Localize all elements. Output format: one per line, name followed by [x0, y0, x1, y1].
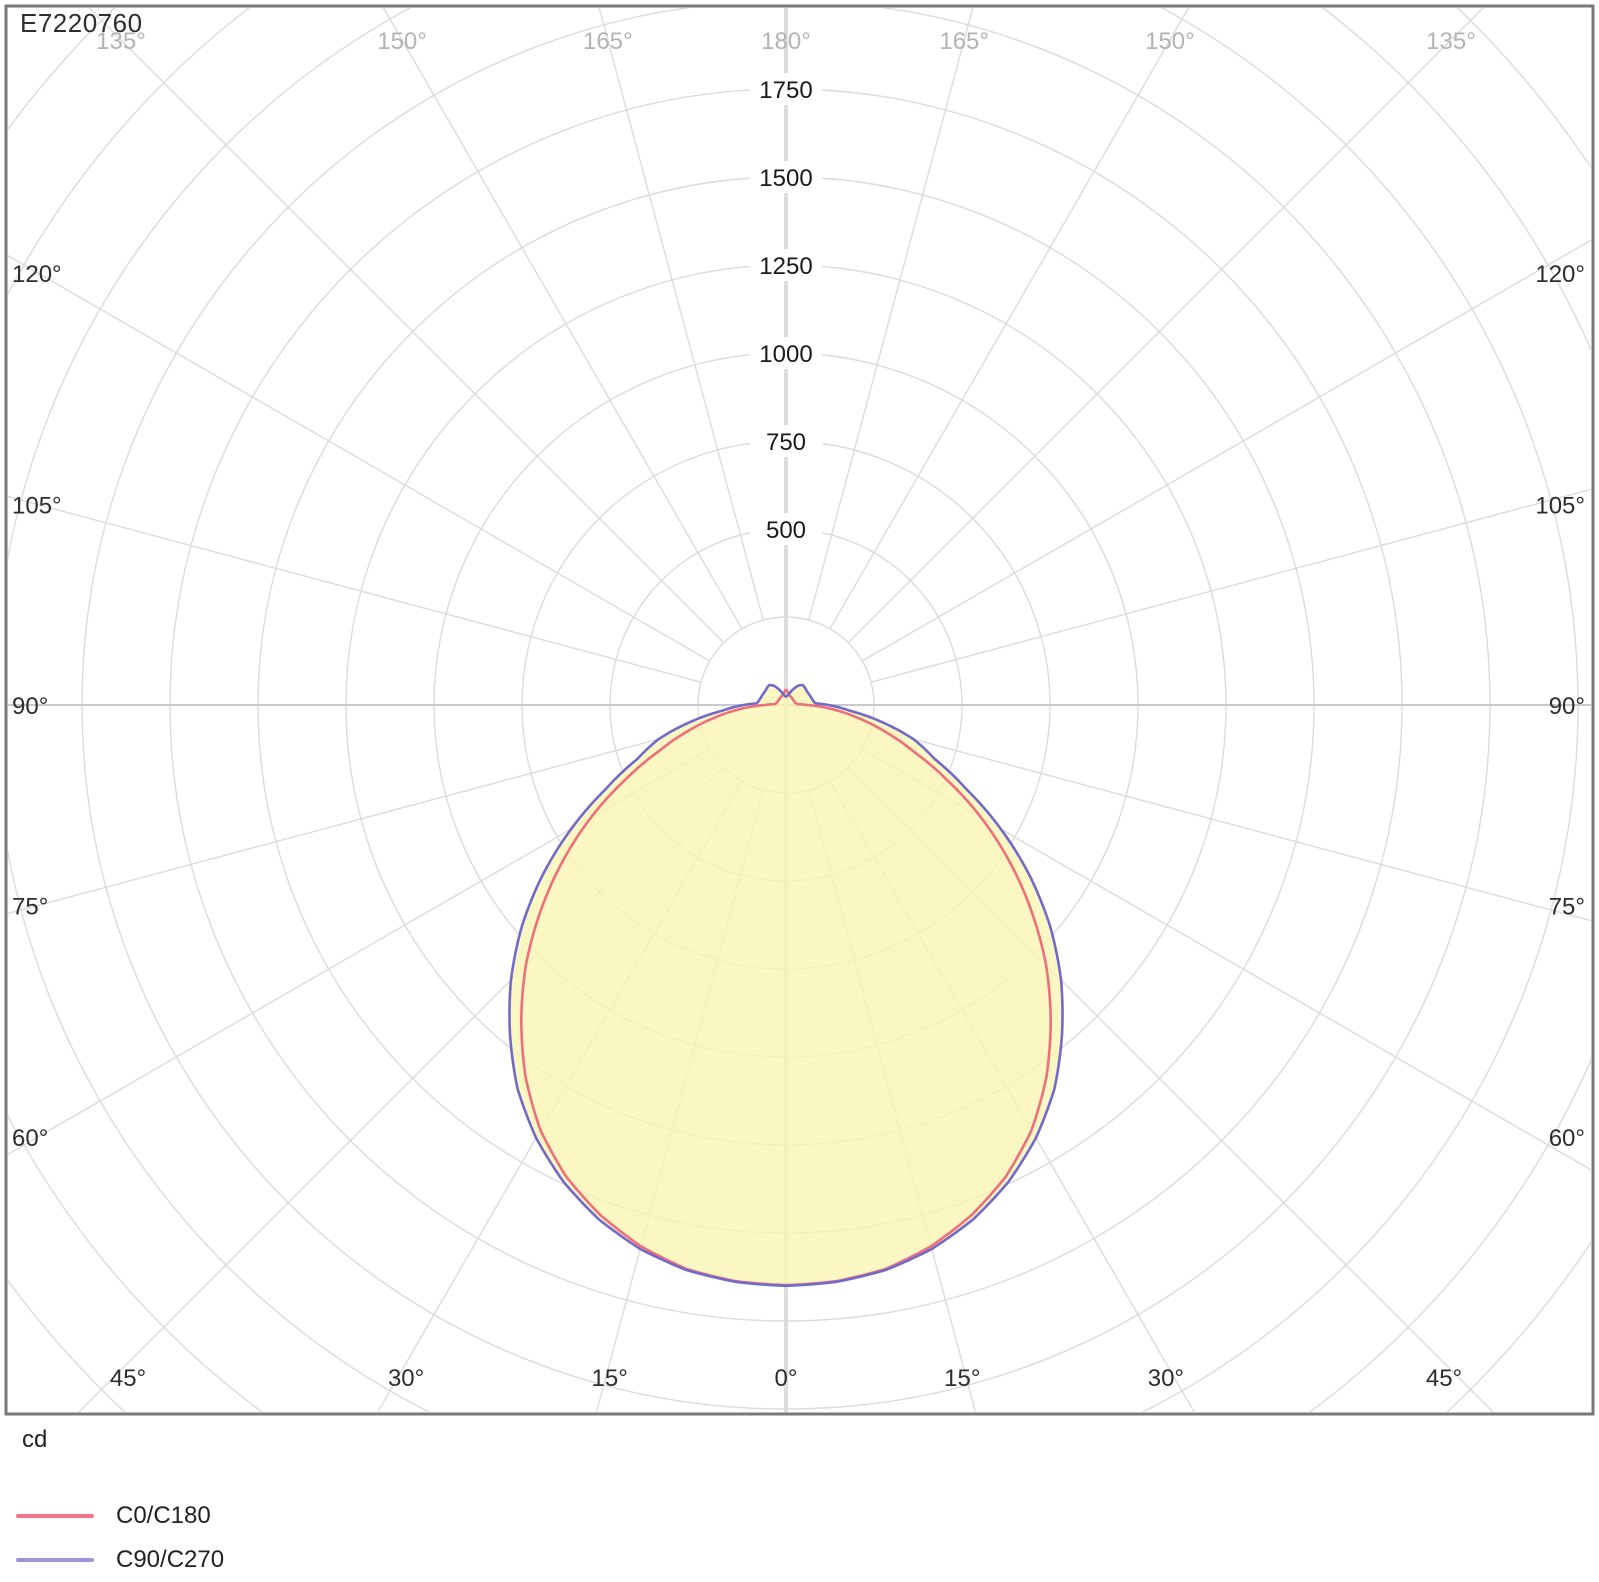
angle-tick-label: 105° [1535, 493, 1585, 520]
angle-tick-label: 0° [775, 1365, 798, 1392]
angle-tick-label: 90° [1549, 693, 1585, 720]
angle-tick-label: 120° [1535, 261, 1585, 288]
grid-spoke [501, 0, 763, 620]
angle-tick-label: 135° [1426, 28, 1476, 55]
grid-spoke [809, 0, 1071, 620]
angle-tick-label: 15° [592, 1365, 628, 1392]
legend-swatch-c90-c270 [16, 1558, 94, 1562]
grid-spoke [848, 0, 1564, 643]
radial-tick-label: 1000 [759, 341, 812, 368]
angle-tick-label: 150° [1145, 28, 1195, 55]
legend-item-c90-c270: C90/C270 [16, 1546, 224, 1574]
grid-spoke [0, 155, 710, 661]
angle-tick-label: 15° [944, 1365, 980, 1392]
angle-tick-label: 165° [583, 28, 633, 55]
grid-spoke [8, 0, 724, 643]
intensity-fill [509, 685, 1062, 1286]
angle-tick-label: 60° [1549, 1125, 1585, 1152]
angle-tick-label: 30° [1148, 1365, 1184, 1392]
angle-tick-label: 90° [12, 693, 48, 720]
legend-label-c0-c180: C0/C180 [116, 1502, 211, 1530]
radial-tick-label: 1750 [759, 77, 812, 104]
grid-spoke [830, 0, 1336, 629]
angle-tick-label: 120° [12, 261, 62, 288]
angle-tick-label: 105° [12, 493, 62, 520]
angle-tick-label: 75° [12, 893, 48, 920]
unit-label: cd [22, 1426, 47, 1454]
angle-tick-label: 75° [1549, 893, 1585, 920]
legend-swatch-c0-c180 [16, 1514, 94, 1518]
angle-tick-label: 180° [761, 28, 811, 55]
angle-tick-label: 150° [377, 28, 427, 55]
radial-tick-label: 1500 [759, 165, 812, 192]
polar-chart-canvas: 0°15°15°30°30°45°45°60°60°75°75°90°90°10… [0, 0, 1599, 1582]
angle-tick-label: 45° [1426, 1365, 1462, 1392]
legend-label-c90-c270: C90/C270 [116, 1546, 224, 1574]
grid-spoke [862, 155, 1599, 661]
radial-tick-label: 750 [766, 429, 806, 456]
polar-intensity-diagram: 0°15°15°30°30°45°45°60°60°75°75°90°90°10… [0, 0, 1599, 1582]
grid-spoke [871, 420, 1599, 682]
radial-tick-label: 1250 [759, 253, 812, 280]
legend-item-c0-c180: C0/C180 [16, 1502, 211, 1530]
page-title: E7220760 [20, 8, 143, 39]
fill-c90-c270 [509, 685, 1062, 1286]
angle-tick-label: 165° [939, 28, 989, 55]
angle-tick-label: 45° [110, 1365, 146, 1392]
angle-tick-label: 60° [12, 1125, 48, 1152]
radial-tick-label: 500 [766, 517, 806, 544]
grid-spoke [236, 0, 742, 629]
angle-tick-label: 30° [388, 1365, 424, 1392]
